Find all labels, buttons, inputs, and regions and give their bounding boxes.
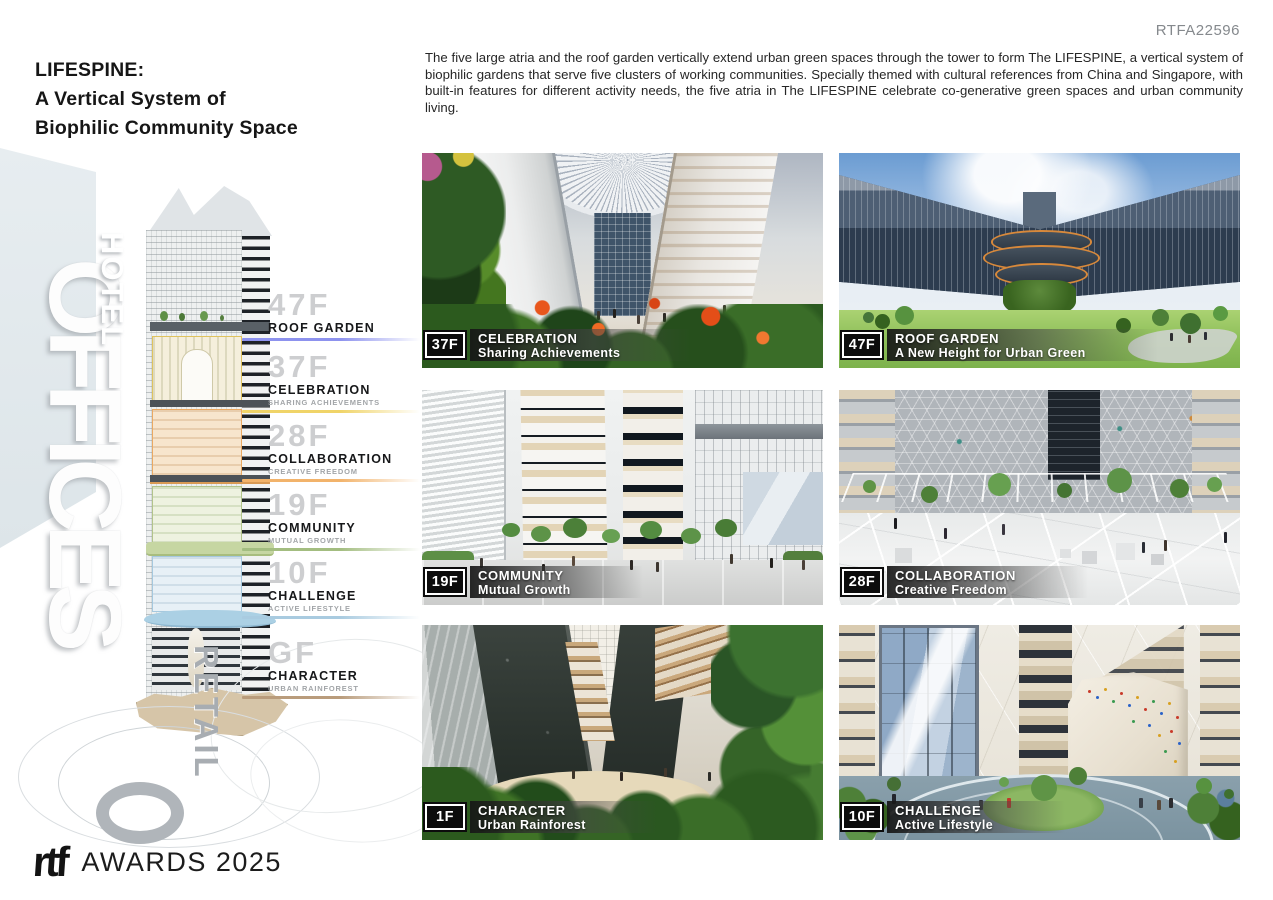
badge-title: COLLABORATION bbox=[895, 568, 1016, 583]
floor-chip: 10F bbox=[842, 804, 882, 830]
floor-number: 37F bbox=[268, 352, 420, 382]
garden-trees bbox=[863, 312, 874, 323]
badge-title: ROOF GARDEN bbox=[895, 331, 1086, 346]
floor-number: 10F bbox=[268, 558, 420, 588]
balcony-tower bbox=[521, 390, 609, 579]
panel-badge: 47F ROOF GARDEN A New Height for Urban G… bbox=[842, 329, 1158, 361]
badge-label: CHARACTER Urban Rainforest bbox=[470, 801, 658, 833]
floor-name: CELEBRATION bbox=[268, 383, 420, 397]
panel-badge: 10F CHALLENGE Active Lifestyle bbox=[842, 801, 1065, 833]
badge-label: CELEBRATION Sharing Achievements bbox=[470, 329, 692, 361]
floor-name: CHALLENGE bbox=[268, 589, 420, 603]
floor-label-19f: 19F COMMUNITY MUTUAL GROWTH bbox=[268, 490, 420, 551]
render-panel-roof-garden: 47F ROOF GARDEN A New Height for Urban G… bbox=[839, 153, 1240, 368]
roof-trees bbox=[160, 311, 168, 321]
floor-subtitle: SHARING ACHIEVEMENTS bbox=[268, 398, 420, 407]
presentation-board: { "page": { "id_code": "RTFA22596" }, "h… bbox=[0, 0, 1273, 900]
glass-entrance bbox=[743, 472, 823, 545]
floor-number: 28F bbox=[268, 421, 420, 451]
badge-label: CHALLENGE Active Lifestyle bbox=[887, 801, 1065, 833]
floor-name: CHARACTER bbox=[268, 669, 420, 683]
blue-deck bbox=[144, 610, 276, 628]
floor-label-28f: 28F COLLABORATION CREATIVE FREEDOM bbox=[268, 421, 420, 482]
panel-badge: 19F COMMUNITY Mutual Growth bbox=[425, 566, 643, 598]
atrium-challenge bbox=[152, 556, 242, 612]
white-pergola bbox=[841, 473, 1238, 502]
floor-slab bbox=[150, 400, 270, 407]
render-panel-collaboration: 28F COLLABORATION Creative Freedom bbox=[839, 390, 1240, 605]
badge-subtitle: Mutual Growth bbox=[478, 583, 571, 597]
badge-title: CHARACTER bbox=[478, 803, 586, 818]
awards-label: AWARDS 2025 bbox=[81, 847, 282, 878]
floor-accent-line bbox=[242, 548, 420, 551]
floor-name: ROOF GARDEN bbox=[268, 321, 420, 335]
floor-chip: 19F bbox=[425, 569, 465, 595]
roof-slab bbox=[150, 322, 270, 331]
panel-badge: 1F CHARACTER Urban Rainforest bbox=[425, 801, 658, 833]
badge-subtitle: Active Lifestyle bbox=[895, 818, 993, 832]
tower-spire bbox=[146, 186, 272, 236]
floor-subtitle: CREATIVE FREEDOM bbox=[268, 467, 420, 476]
floor-chip: 1F bbox=[425, 804, 465, 830]
people-silhouettes bbox=[894, 518, 897, 529]
floor-number: GF bbox=[268, 638, 420, 668]
awards-footer: rtf AWARDS 2025 bbox=[33, 844, 282, 880]
floor-name: COMMUNITY bbox=[268, 521, 420, 535]
floor-chip: 37F bbox=[425, 332, 465, 358]
floor-name: COLLABORATION bbox=[268, 452, 420, 466]
render-panel-community: 19F COMMUNITY Mutual Growth bbox=[422, 390, 823, 605]
rtf-logo-icon: rtf bbox=[32, 844, 67, 880]
badge-subtitle: Sharing Achievements bbox=[478, 346, 620, 360]
floor-accent-line bbox=[242, 338, 420, 341]
render-panel-celebration: 37F CELEBRATION Sharing Achievements bbox=[422, 153, 823, 368]
floor-accent-line bbox=[242, 479, 420, 482]
sky-bridge bbox=[695, 424, 823, 439]
panel-badge: 37F CELEBRATION Sharing Achievements bbox=[425, 329, 692, 361]
badge-label: COLLABORATION Creative Freedom bbox=[887, 566, 1088, 598]
floor-chip: 47F bbox=[842, 332, 882, 358]
floor-label-10f: 10F CHALLENGE ACTIVE LIFESTYLE bbox=[268, 558, 420, 619]
badge-subtitle: A New Height for Urban Green bbox=[895, 346, 1086, 360]
floor-subtitle: URBAN RAINFOREST bbox=[268, 684, 420, 693]
floor-accent-line bbox=[242, 410, 420, 413]
watermark-retail: RETAIL bbox=[190, 645, 223, 780]
tower-floor-strip bbox=[242, 236, 270, 708]
planting-bed bbox=[1184, 776, 1240, 841]
core-opening bbox=[1048, 390, 1100, 480]
floor-subtitle: ACTIVE LIFESTYLE bbox=[268, 604, 420, 613]
tall-window-wall bbox=[879, 625, 979, 784]
floor-accent-line bbox=[242, 696, 420, 699]
panel-badge: 28F COLLABORATION Creative Freedom bbox=[842, 566, 1088, 598]
banded-core bbox=[1019, 625, 1071, 797]
badge-subtitle: Creative Freedom bbox=[895, 583, 1016, 597]
floor-accent-line bbox=[242, 616, 420, 619]
climbing-holds bbox=[1088, 690, 1091, 693]
marble-seat-cubes bbox=[1060, 549, 1071, 558]
badge-subtitle: Urban Rainforest bbox=[478, 818, 586, 832]
atrium-arch bbox=[181, 349, 213, 401]
podium-ring-dark bbox=[96, 782, 184, 844]
watermark-hotel: HOTEL bbox=[97, 232, 128, 347]
atrium-collaboration bbox=[152, 409, 242, 477]
floor-number: 47F bbox=[268, 290, 420, 320]
badge-title: COMMUNITY bbox=[478, 568, 571, 583]
floor-label-37f: 37F CELEBRATION SHARING ACHIEVEMENTS bbox=[268, 352, 420, 413]
atrium-community bbox=[152, 486, 242, 544]
render-panel-character: 1F CHARACTER Urban Rainforest bbox=[422, 625, 823, 840]
floor-label-47f: 47F ROOF GARDEN bbox=[268, 290, 420, 341]
render-panel-challenge: 10F CHALLENGE Active Lifestyle bbox=[839, 625, 1240, 840]
badge-title: CELEBRATION bbox=[478, 331, 620, 346]
balcony-tower bbox=[623, 390, 683, 588]
floor-label-gf: GF CHARACTER URBAN RAINFOREST bbox=[268, 638, 420, 699]
badge-title: CHALLENGE bbox=[895, 803, 993, 818]
atrium-celebration bbox=[152, 336, 242, 402]
floor-subtitle: MUTUAL GROWTH bbox=[268, 536, 420, 545]
badge-label: ROOF GARDEN A New Height for Urban Green bbox=[887, 329, 1158, 361]
badge-label: COMMUNITY Mutual Growth bbox=[470, 566, 643, 598]
floor-number: 19F bbox=[268, 490, 420, 520]
floor-chip: 28F bbox=[842, 569, 882, 595]
